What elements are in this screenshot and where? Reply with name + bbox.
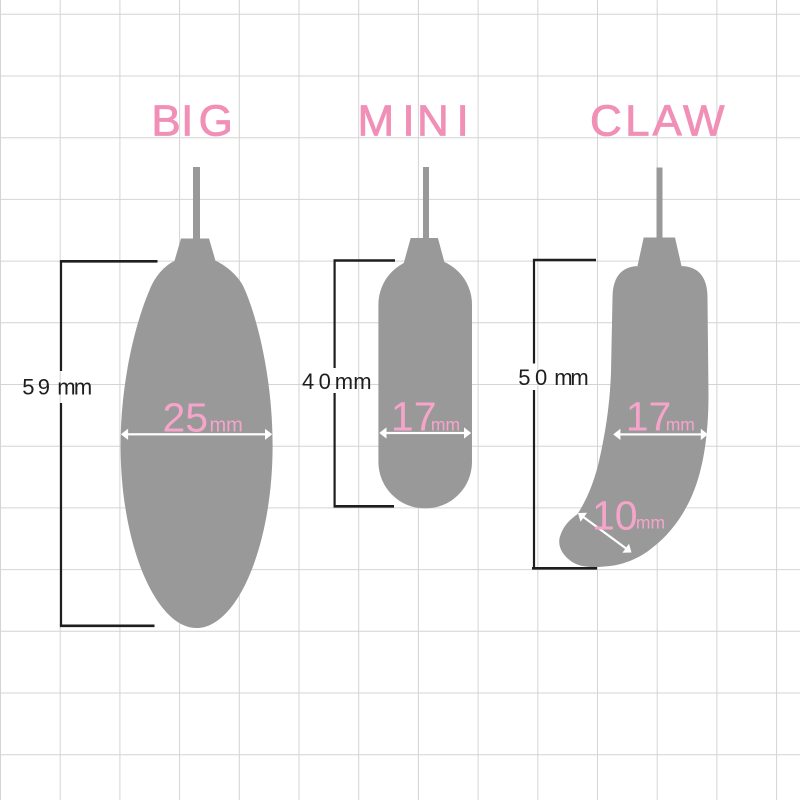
svg-text:BIG: BIG <box>151 96 232 145</box>
svg-text:mm: mm <box>636 513 665 533</box>
svg-text:mm: mm <box>554 365 588 390</box>
svg-text:17: 17 <box>391 394 437 440</box>
svg-text:mm: mm <box>210 415 243 437</box>
svg-text:mm: mm <box>431 415 460 435</box>
svg-text:40: 40 <box>302 369 331 394</box>
svg-text:50: 50 <box>518 365 547 390</box>
svg-text:10: 10 <box>592 493 638 539</box>
svg-text:mm: mm <box>335 369 372 394</box>
svg-text:CLAW: CLAW <box>590 96 725 145</box>
svg-text:mm: mm <box>666 415 695 435</box>
svg-text:59: 59 <box>22 374 50 399</box>
svg-text:25: 25 <box>162 395 208 441</box>
svg-text:17: 17 <box>626 394 672 440</box>
svg-text:mm: mm <box>57 374 92 399</box>
